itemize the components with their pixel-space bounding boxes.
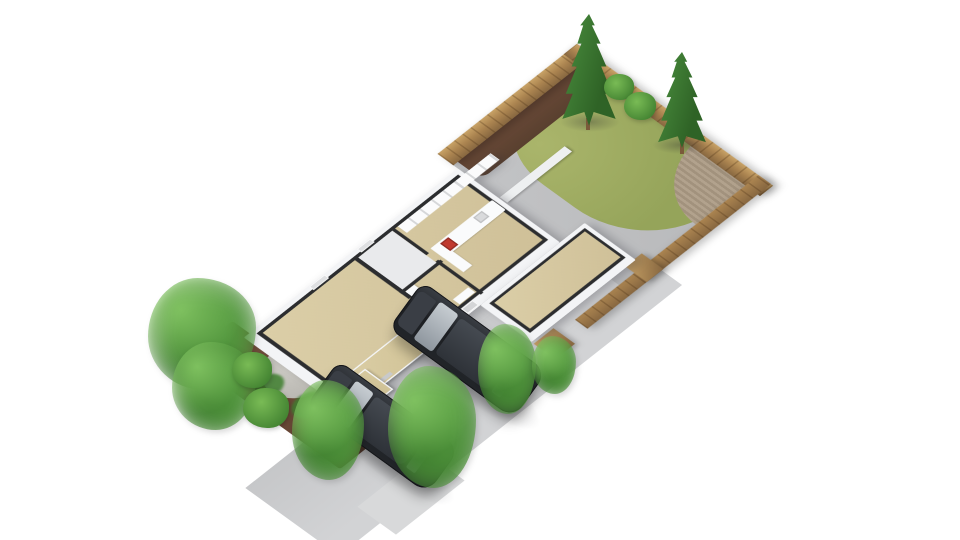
mulch-plant [232,352,272,388]
floorplan-render [0,0,960,540]
gate-shrub [532,336,576,394]
garden-shrub [624,92,656,120]
mulch-plant [243,388,289,428]
driveway-shrub [388,366,476,488]
conifer-tree-2 [656,52,708,150]
